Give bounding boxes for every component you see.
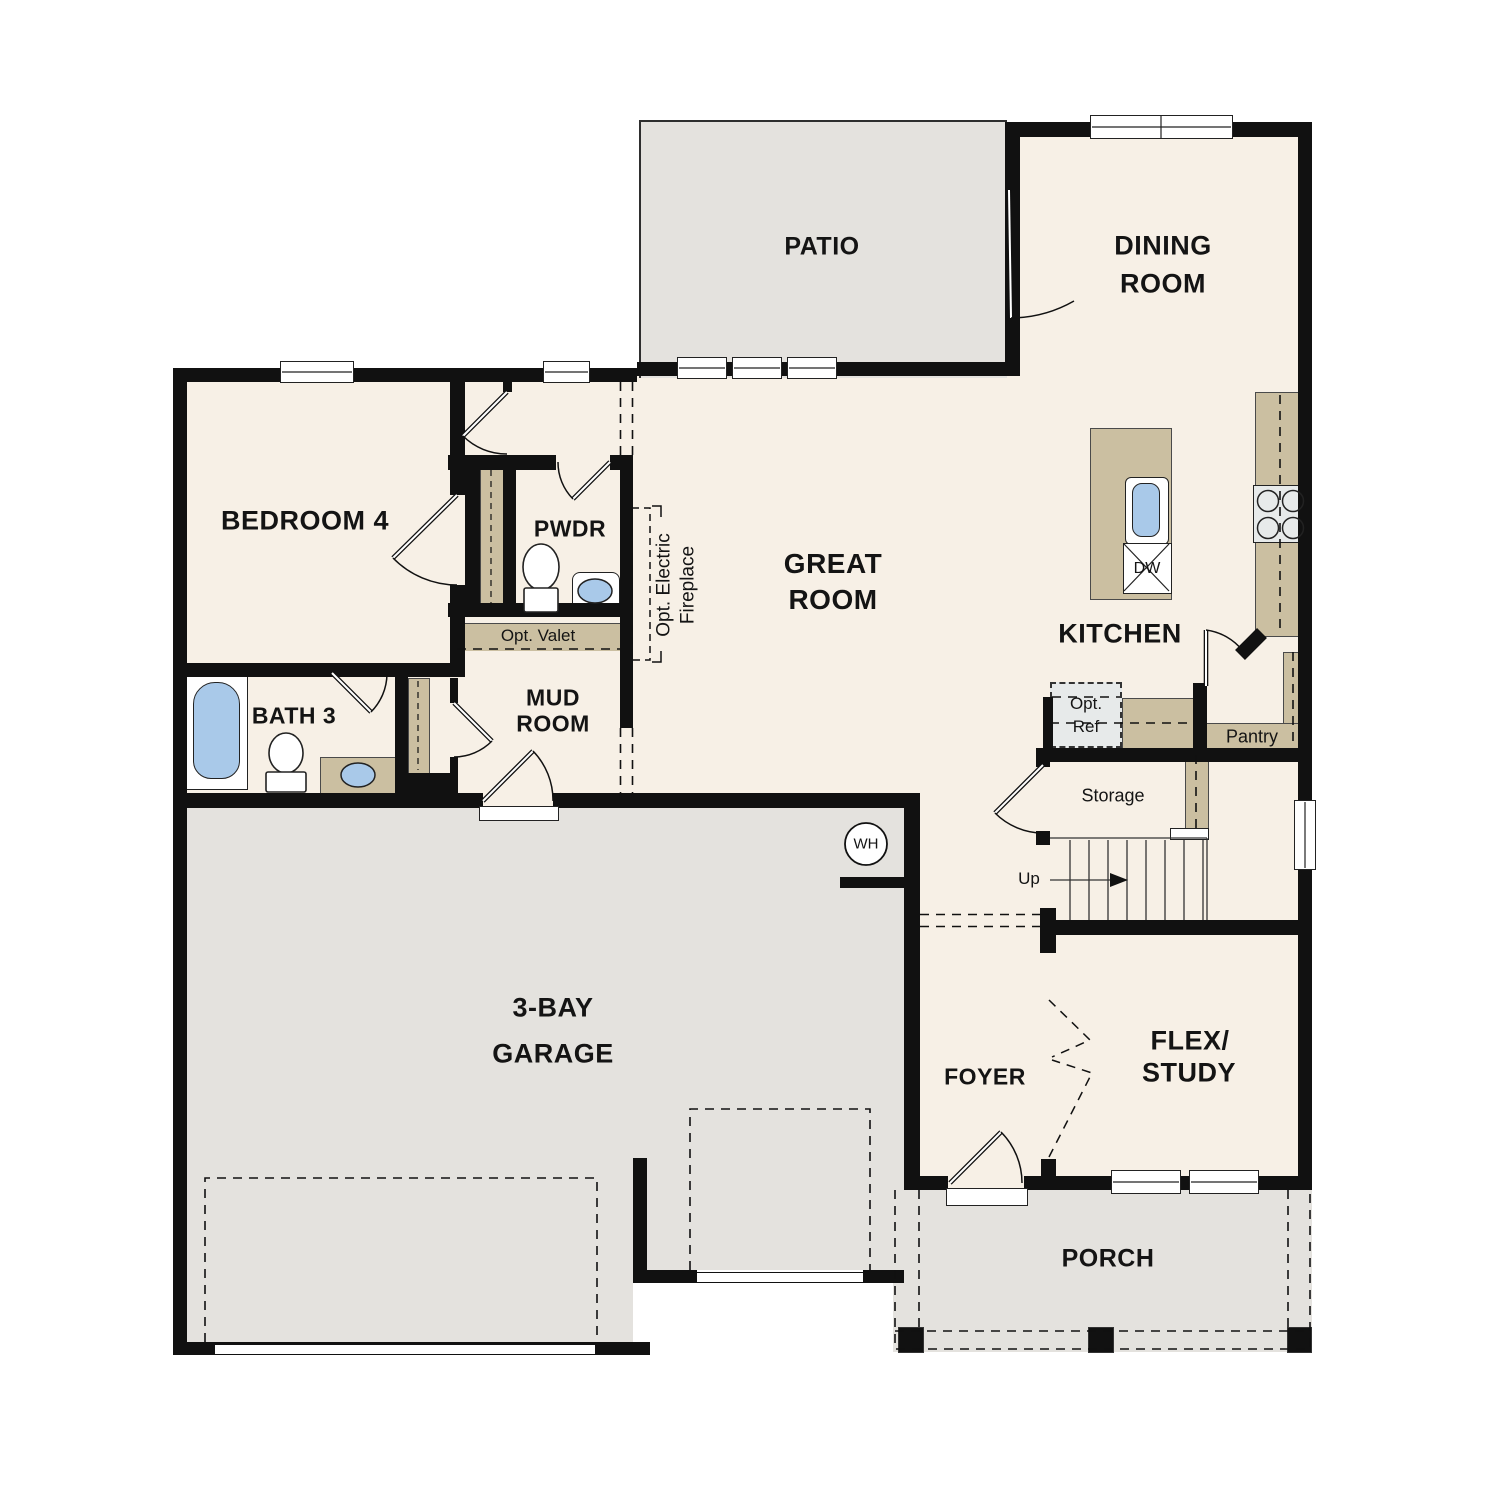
- wall: [1036, 831, 1050, 845]
- wh-label: WH: [854, 836, 879, 853]
- opt-fireplace-label-line1: Opt. Electric: [652, 533, 676, 636]
- wall: [633, 1158, 647, 1283]
- stair-shelf: [1185, 752, 1209, 835]
- wall: [620, 455, 633, 728]
- opt-valet-label: Opt. Valet: [501, 626, 575, 646]
- wall: [448, 603, 633, 617]
- great-label-1: GREAT: [784, 548, 882, 580]
- flex-label-1: FLEX/: [1150, 1026, 1229, 1057]
- wall: [863, 1270, 904, 1283]
- wall: [1043, 697, 1053, 748]
- dining-label-2: ROOM: [1120, 269, 1206, 300]
- dining-window: [1090, 115, 1233, 139]
- wall: [173, 368, 187, 1355]
- wall: [173, 793, 483, 808]
- dining-label-1: DINING: [1114, 231, 1212, 262]
- foyer-label: FOYER: [944, 1064, 1026, 1091]
- flex-label-2: STUDY: [1142, 1058, 1236, 1089]
- garage-label-1: 3-BAY: [512, 993, 593, 1024]
- ref-counter: [1122, 698, 1195, 750]
- hall-closet: [408, 678, 430, 775]
- wall: [503, 382, 512, 392]
- side-window: [1294, 800, 1316, 870]
- pwdr-label: PWDR: [534, 516, 606, 543]
- opt-fireplace-label-line2: Fireplace: [676, 533, 700, 636]
- storage-label: Storage: [1081, 786, 1144, 807]
- floorplan: PATIO DINING ROOM BEDROOM 4 PWDR BATH 3 …: [0, 0, 1500, 1500]
- mudroom-door-threshold: [479, 806, 559, 821]
- wall: [1040, 920, 1312, 935]
- wall: [1298, 122, 1312, 1190]
- wall: [633, 1270, 697, 1283]
- tub: [193, 682, 240, 779]
- opt-fireplace-label: Opt. Electric Fireplace: [652, 533, 700, 636]
- flex-window-2: [1189, 1170, 1259, 1194]
- opt-ref-label-2: Ref: [1073, 717, 1099, 737]
- mud-label-2: ROOM: [516, 711, 590, 738]
- wall: [450, 757, 458, 773]
- flex-window-1: [1111, 1170, 1181, 1194]
- bath3-vanity: [320, 757, 397, 795]
- opt-ref-label-1: Opt.: [1070, 694, 1102, 714]
- patio-window-2: [732, 357, 782, 379]
- bedroom4-closet: [480, 462, 505, 617]
- wall: [450, 368, 465, 495]
- bath3-label: BATH 3: [252, 703, 336, 730]
- wall: [1043, 748, 1312, 762]
- wall: [465, 455, 480, 615]
- porch-label: PORCH: [1062, 1245, 1155, 1274]
- wall: [180, 663, 457, 677]
- porch-post: [1088, 1327, 1114, 1353]
- garage-label-2: GARAGE: [492, 1039, 614, 1070]
- opt-ref-box: [1050, 682, 1122, 748]
- garage-bay-floor: [187, 1270, 633, 1342]
- island-sink: [1132, 483, 1160, 537]
- great-label-2: ROOM: [788, 584, 877, 616]
- up-label: Up: [1018, 869, 1040, 889]
- patio-window-3: [787, 357, 837, 379]
- wall: [395, 773, 458, 793]
- wall: [450, 678, 458, 703]
- wall: [503, 455, 516, 615]
- patio-window-1: [677, 357, 727, 379]
- garage-door-right: [697, 1272, 863, 1283]
- bedroom4-window-1: [280, 361, 354, 383]
- wall: [904, 808, 920, 1190]
- bedroom4-label: BEDROOM 4: [221, 506, 389, 537]
- foyer-flex-floor: [904, 928, 1312, 1176]
- wall: [553, 793, 920, 808]
- porch-post: [898, 1327, 924, 1353]
- wall: [840, 877, 904, 888]
- garage-door-left: [215, 1344, 595, 1355]
- mud-label-1: MUD: [526, 685, 580, 712]
- stair-landing-edge: [1170, 828, 1209, 840]
- wall: [1036, 748, 1050, 767]
- wall: [450, 585, 465, 677]
- kitchen-label: KITCHEN: [1058, 619, 1182, 650]
- bedroom4-window-2: [543, 361, 590, 383]
- porch-post: [1287, 1327, 1312, 1353]
- wall: [1005, 122, 1020, 376]
- dw-label: DW: [1134, 560, 1161, 578]
- patio-label: PATIO: [784, 233, 859, 262]
- front-door-threshold: [946, 1188, 1028, 1206]
- pantry-label: Pantry: [1226, 727, 1278, 748]
